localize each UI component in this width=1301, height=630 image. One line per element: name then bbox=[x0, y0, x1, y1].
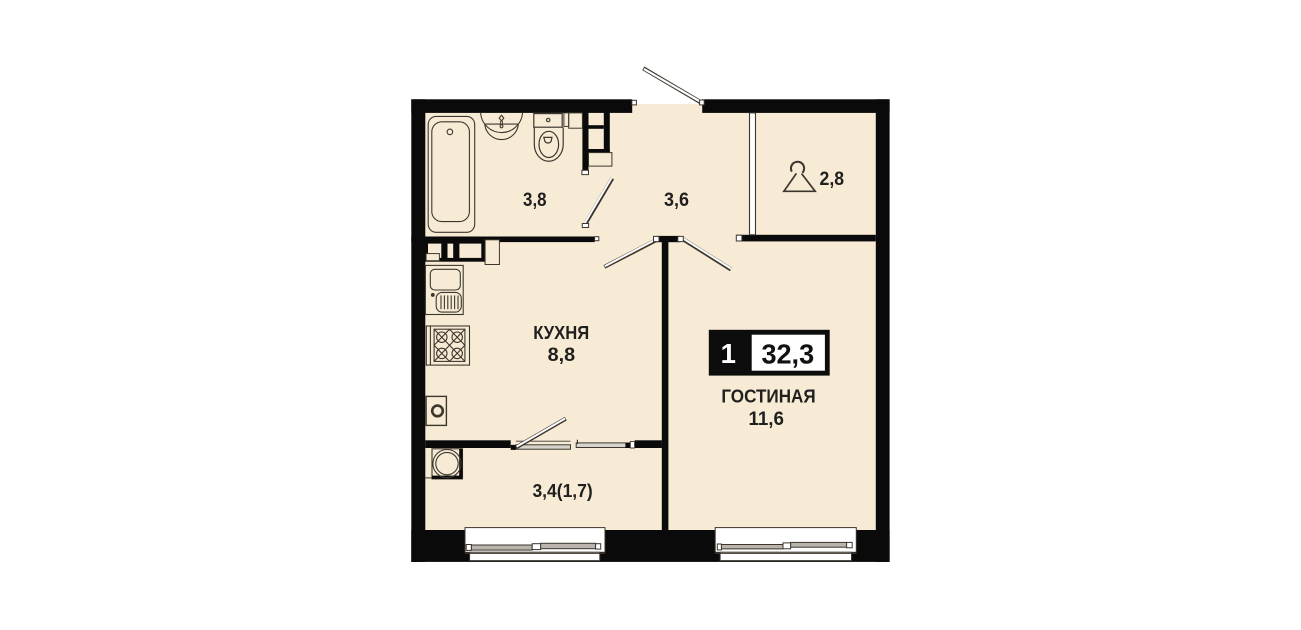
svg-text:3,4(1,7): 3,4(1,7) bbox=[532, 480, 592, 501]
svg-text:2,8: 2,8 bbox=[820, 169, 845, 190]
svg-text:КУХНЯ: КУХНЯ bbox=[533, 322, 589, 343]
svg-text:1: 1 bbox=[721, 338, 736, 369]
svg-text:32,3: 32,3 bbox=[761, 338, 814, 369]
svg-text:11,6: 11,6 bbox=[748, 409, 784, 430]
svg-text:ГОСТИНАЯ: ГОСТИНАЯ bbox=[721, 385, 815, 406]
svg-text:3,6: 3,6 bbox=[664, 190, 689, 211]
svg-text:3,8: 3,8 bbox=[523, 190, 547, 211]
svg-text:8,8: 8,8 bbox=[548, 345, 576, 366]
